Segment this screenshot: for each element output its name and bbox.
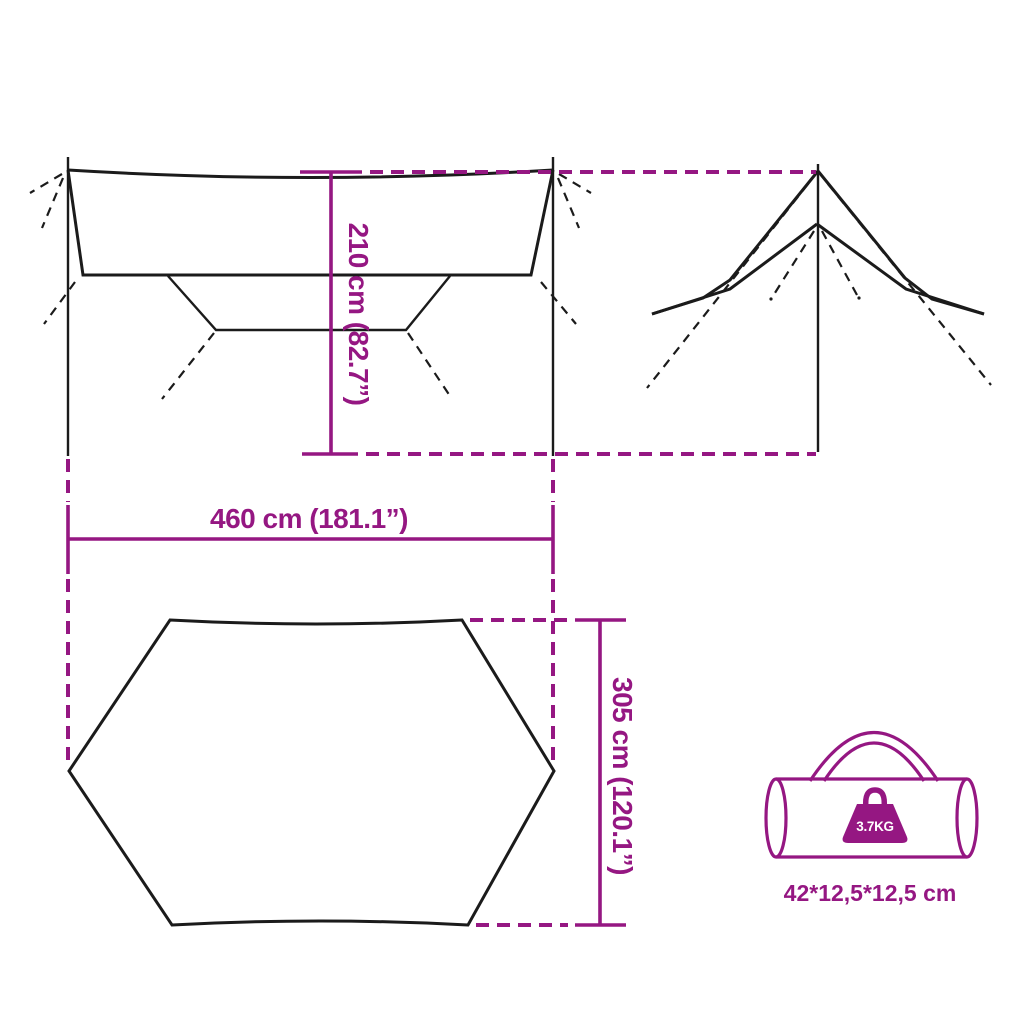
side-guy-line-end-dot <box>857 296 860 299</box>
tarp-top-view-hexagon <box>69 620 554 925</box>
depth-dimension-label: 305 cm (120.1”) <box>607 677 638 875</box>
width-dimension: 460 cm (181.1”) <box>68 459 553 768</box>
side-guy-line <box>828 184 991 385</box>
bag-size-label: 42*12,5*12,5 cm <box>784 880 957 906</box>
front-tarp-inner-panel <box>168 276 450 330</box>
tarp-side-view-drawing <box>647 164 991 452</box>
front-guy-line <box>44 282 75 324</box>
height-dimension: 210 cm (82.7”) <box>300 172 816 454</box>
front-tarp-body <box>68 170 553 275</box>
weight-label: 3.7KG <box>856 819 894 834</box>
height-dimension-label: 210 cm (82.7”) <box>343 223 374 406</box>
front-guy-line <box>30 174 62 193</box>
bag-right-end <box>957 779 977 857</box>
diagram-canvas: 210 cm (82.7”) 460 cm (181.1”) 305 cm (1… <box>0 0 1024 1024</box>
front-guy-line <box>42 178 63 228</box>
front-guy-line <box>408 333 452 399</box>
side-tarp-lower-right-edge <box>817 224 984 314</box>
side-guy-line-end-dot <box>769 297 772 300</box>
tarp-front-view-drawing <box>30 157 591 456</box>
front-guy-line <box>162 333 214 399</box>
side-guy-line <box>647 184 808 388</box>
top-view-outline <box>69 620 554 925</box>
front-guy-line <box>558 178 579 228</box>
weight-icon: 3.7KG <box>843 790 908 843</box>
carry-bag-icon: 3.7KG 42*12,5*12,5 cm <box>766 733 977 907</box>
bag-left-end <box>766 779 786 857</box>
front-guy-line <box>541 282 576 324</box>
front-guy-line <box>559 174 591 193</box>
width-dimension-label: 460 cm (181.1”) <box>210 503 408 534</box>
product-dimension-diagram: 210 cm (82.7”) 460 cm (181.1”) 305 cm (1… <box>0 0 1024 1024</box>
side-tarp-lower-left-edge <box>652 224 817 314</box>
